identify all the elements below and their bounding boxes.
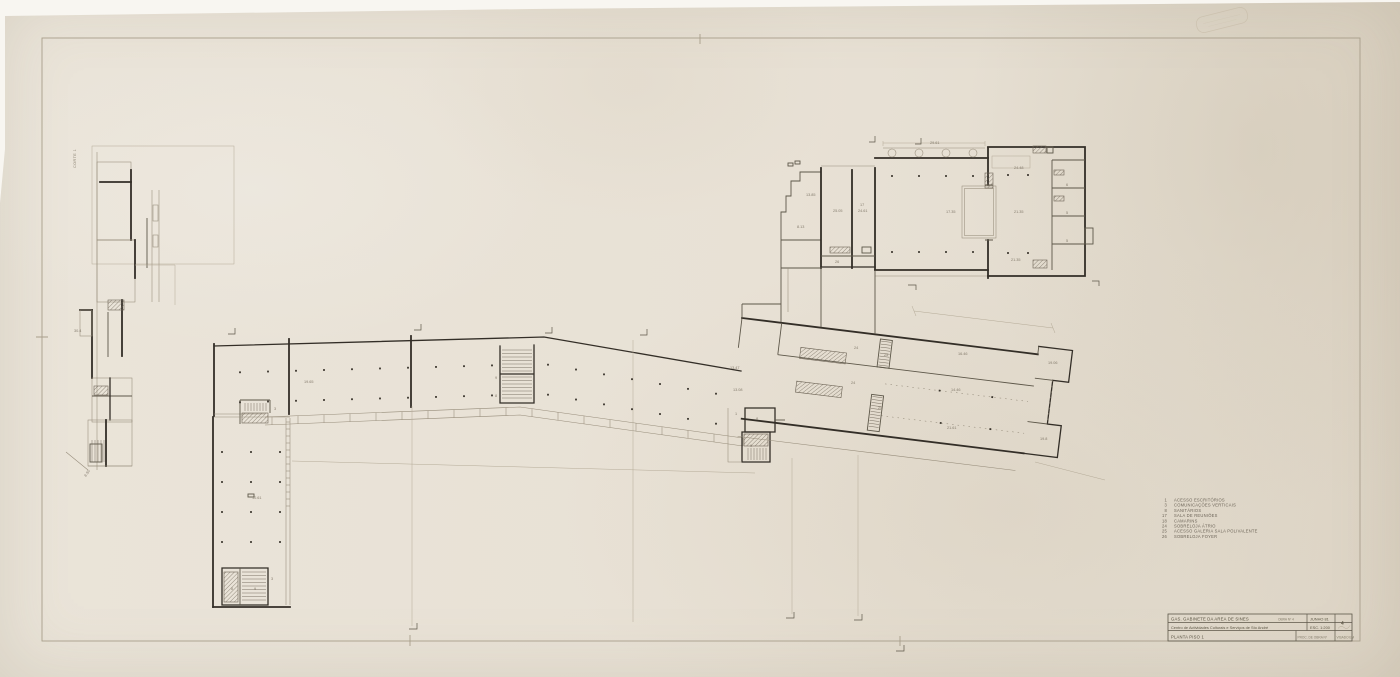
column-dot <box>407 397 409 399</box>
plan-level-label: 1 <box>735 412 737 416</box>
floor-plan-drawing: CORTE 1 <box>0 0 1400 677</box>
column-dot <box>221 541 223 543</box>
column-dot <box>659 413 661 415</box>
plan-level-label: 5 <box>1066 239 1068 243</box>
plan-level-label: 24.48 <box>1014 166 1024 170</box>
plan-level-label: 13.08 <box>733 388 743 392</box>
plan-level-label: 9 <box>495 376 497 380</box>
title-block: GAS. GABINETE DA AREA DE SINES OBRA Nº 4… <box>1168 614 1355 641</box>
column-dot <box>279 451 281 453</box>
legend: 1ACESSO ESCRITÓRIOS3COMUNICAÇÕES VERTICA… <box>1162 498 1258 539</box>
column-dot <box>891 175 893 177</box>
column-dot <box>407 367 409 369</box>
column-dot <box>250 451 252 453</box>
plan-level-label: 9 <box>254 587 256 591</box>
title-scale: ESC. 1:200 <box>1310 625 1331 630</box>
fixture <box>1054 196 1064 201</box>
plan-level-label: 10.61 <box>252 496 262 500</box>
plan-level-label: 3 <box>274 407 276 411</box>
plan-level-label: 26 <box>835 260 839 264</box>
plan-level-label: 21.61 <box>947 426 957 430</box>
stair-tread <box>881 341 891 342</box>
column-dot <box>351 368 353 370</box>
title-process-ref: PROC. DE OBRA Nº <box>1298 635 1328 639</box>
stair-tread <box>869 426 879 427</box>
column-dot <box>631 378 633 380</box>
title-sheet-number: 4 <box>1341 621 1344 627</box>
plan-level-label: 8 <box>495 394 497 398</box>
gallery-railing <box>265 407 743 446</box>
stair-tread <box>869 420 879 421</box>
column-dot <box>1007 252 1009 254</box>
plan-level-label: 8 <box>756 417 758 421</box>
column-dot <box>603 403 605 405</box>
plan-level-label: 13.47 <box>730 366 740 370</box>
column-dot <box>918 251 920 253</box>
office-wing-plan <box>214 336 743 446</box>
stair-tread <box>869 423 879 424</box>
title-date: JUNHO 81 <box>1310 617 1329 622</box>
plan-level-label: 14.46 <box>951 388 961 392</box>
ramp-hatch <box>800 347 847 364</box>
column-dot <box>603 373 605 375</box>
stair-core <box>222 568 268 605</box>
approval-stamp <box>1195 6 1249 34</box>
stair-hatch <box>108 300 124 310</box>
column-dot <box>379 368 381 370</box>
plan-level-label: 25 <box>884 353 888 357</box>
theatre-block-plan <box>742 141 1093 334</box>
column-dot <box>463 395 465 397</box>
plan-level-label: 24 <box>854 346 858 350</box>
column-dot <box>918 175 920 177</box>
column-dot <box>972 175 974 177</box>
plan-level-label: 17.35 <box>946 210 956 214</box>
title-visa: VISADO EM <box>1337 635 1355 639</box>
stair-hatch <box>1033 260 1047 268</box>
plan-level-label: 25.05 <box>833 209 843 213</box>
column-dot <box>250 541 252 543</box>
column-dot <box>435 396 437 398</box>
column-dot <box>575 369 577 371</box>
plan-level-label: 24.61 <box>858 209 868 213</box>
stair-tread <box>870 417 880 418</box>
plan-level-label: 8.50 <box>84 469 92 477</box>
column-dot <box>435 366 437 368</box>
stair-tread <box>880 350 890 351</box>
ramp-hatch <box>795 381 842 398</box>
column-dot <box>267 371 269 373</box>
column-dot <box>575 399 577 401</box>
column-dot <box>547 394 549 396</box>
title-project: Centro de Actividades Culturais e Serviç… <box>1171 625 1268 630</box>
plan-level-label: 17 <box>860 203 864 207</box>
column-dot <box>295 400 297 402</box>
plan-level-label: 21.35 <box>1011 258 1021 262</box>
column-dot <box>221 481 223 483</box>
column-dot <box>715 423 717 425</box>
column-dot <box>491 365 493 367</box>
column-dot <box>687 418 689 420</box>
fixture <box>1054 170 1064 175</box>
column-dot <box>295 370 297 372</box>
column-dot <box>221 511 223 513</box>
plan-level-label: 21.35 <box>1014 210 1024 214</box>
stair-hatch <box>94 386 108 395</box>
section-lines <box>292 340 1105 626</box>
plan-level-label: 24 <box>851 381 855 385</box>
plan-level-label: 13.85 <box>806 193 816 197</box>
signature-squiggle <box>1338 626 1350 629</box>
column-dot <box>991 396 993 398</box>
column-dot <box>221 451 223 453</box>
plan-level-label: 16.46 <box>958 352 968 356</box>
stair-hatch <box>1033 146 1046 153</box>
section-marks <box>228 136 1099 651</box>
stair-tread <box>879 362 889 363</box>
column-dot <box>351 398 353 400</box>
column-dot <box>323 369 325 371</box>
column-dots <box>92 174 1029 600</box>
stair-tread <box>879 359 889 360</box>
column-dot <box>659 383 661 385</box>
column-dot <box>239 401 241 403</box>
column-dot <box>945 251 947 253</box>
column-dot <box>1027 174 1029 176</box>
lift-hatch <box>985 173 993 188</box>
stair-tread <box>872 399 882 400</box>
plan-level-label: 30.4 <box>74 329 81 333</box>
column-dot <box>279 481 281 483</box>
stage <box>962 186 996 238</box>
column-dot <box>687 388 689 390</box>
column-dot <box>989 428 991 430</box>
stair-left <box>240 400 270 424</box>
plan-level-label: 19.8 <box>1040 437 1047 441</box>
left-fragment-plan <box>66 146 234 470</box>
column-dot <box>463 365 465 367</box>
stair-tread <box>872 402 882 403</box>
column-dot <box>1027 252 1029 254</box>
plan-level-label: 19.06 <box>1048 361 1058 365</box>
plan-level-label: 6 <box>1066 183 1068 187</box>
plan-labels: 39819.6510.6189318913.4713.082424252516.… <box>74 141 1068 591</box>
stair-tread <box>880 347 890 348</box>
plan-level-label: 8 <box>231 587 233 591</box>
column-dot <box>250 481 252 483</box>
legend-item-label: SOBRELOJA FOYER <box>1174 534 1217 539</box>
stair-tread <box>870 414 880 415</box>
legend-item-number: 26 <box>1162 534 1168 539</box>
column-dot <box>239 371 241 373</box>
column-dot <box>972 251 974 253</box>
column-dot <box>379 398 381 400</box>
column-dot <box>891 251 893 253</box>
plan-level-label: 9 <box>750 444 752 448</box>
plan-level-label: 25 <box>878 406 882 410</box>
column-dot <box>250 511 252 513</box>
plan-level-label: 3 <box>271 577 273 581</box>
column-dot <box>267 401 269 403</box>
title-org: GAS. GABINETE DA AREA DE SINES <box>1171 617 1249 622</box>
plan-level-label: 5 <box>1066 211 1068 215</box>
column-dot <box>945 175 947 177</box>
plan-level-label: 8.13 <box>797 225 804 229</box>
column-dot <box>491 395 493 397</box>
plan-level-label: 19.65 <box>304 380 314 384</box>
title-obra-ref: OBRA Nº 4 <box>1278 617 1294 621</box>
column-dot <box>940 422 942 424</box>
stair-tread <box>872 396 882 397</box>
column-dot <box>631 408 633 410</box>
polyvalent-hall-plan <box>728 310 1073 476</box>
stair-tread <box>878 365 888 366</box>
plan-level-label: 29.61 <box>930 141 940 145</box>
stair-tread <box>881 344 891 345</box>
column-dot <box>1007 174 1009 176</box>
column-dot <box>939 390 941 392</box>
title-drawing-name: PLANTA PISO 1 <box>1171 635 1204 640</box>
column-dot <box>279 511 281 513</box>
stair-tread <box>871 411 881 412</box>
border-frame <box>36 34 1360 646</box>
column-dot <box>323 399 325 401</box>
side-section-label: CORTE 1 <box>73 149 77 168</box>
column-dot <box>547 364 549 366</box>
column-dot <box>279 541 281 543</box>
column-dot <box>715 393 717 395</box>
